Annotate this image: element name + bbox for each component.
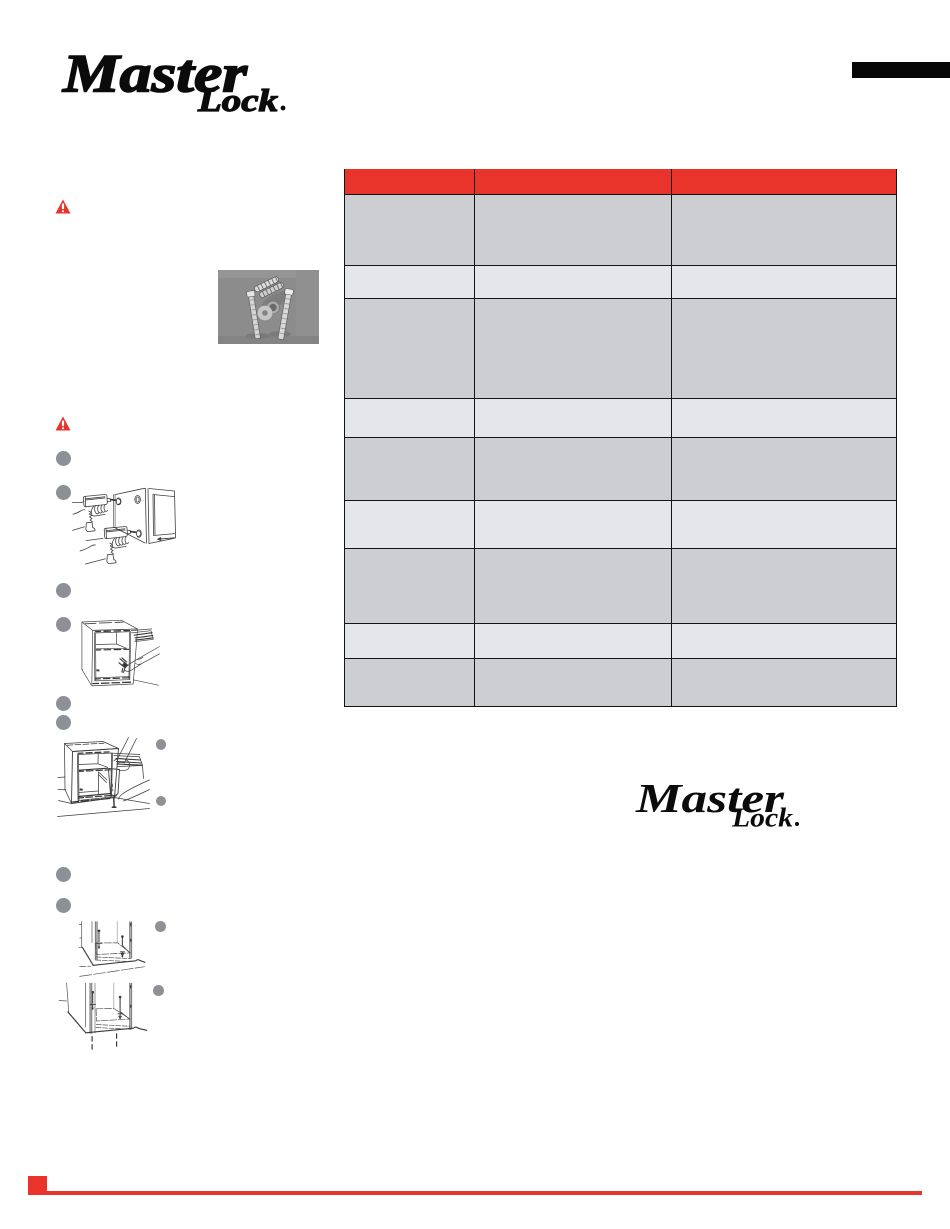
svg-text:Lock: Lock: [731, 803, 794, 833]
svg-text:Lock: Lock: [197, 82, 278, 118]
